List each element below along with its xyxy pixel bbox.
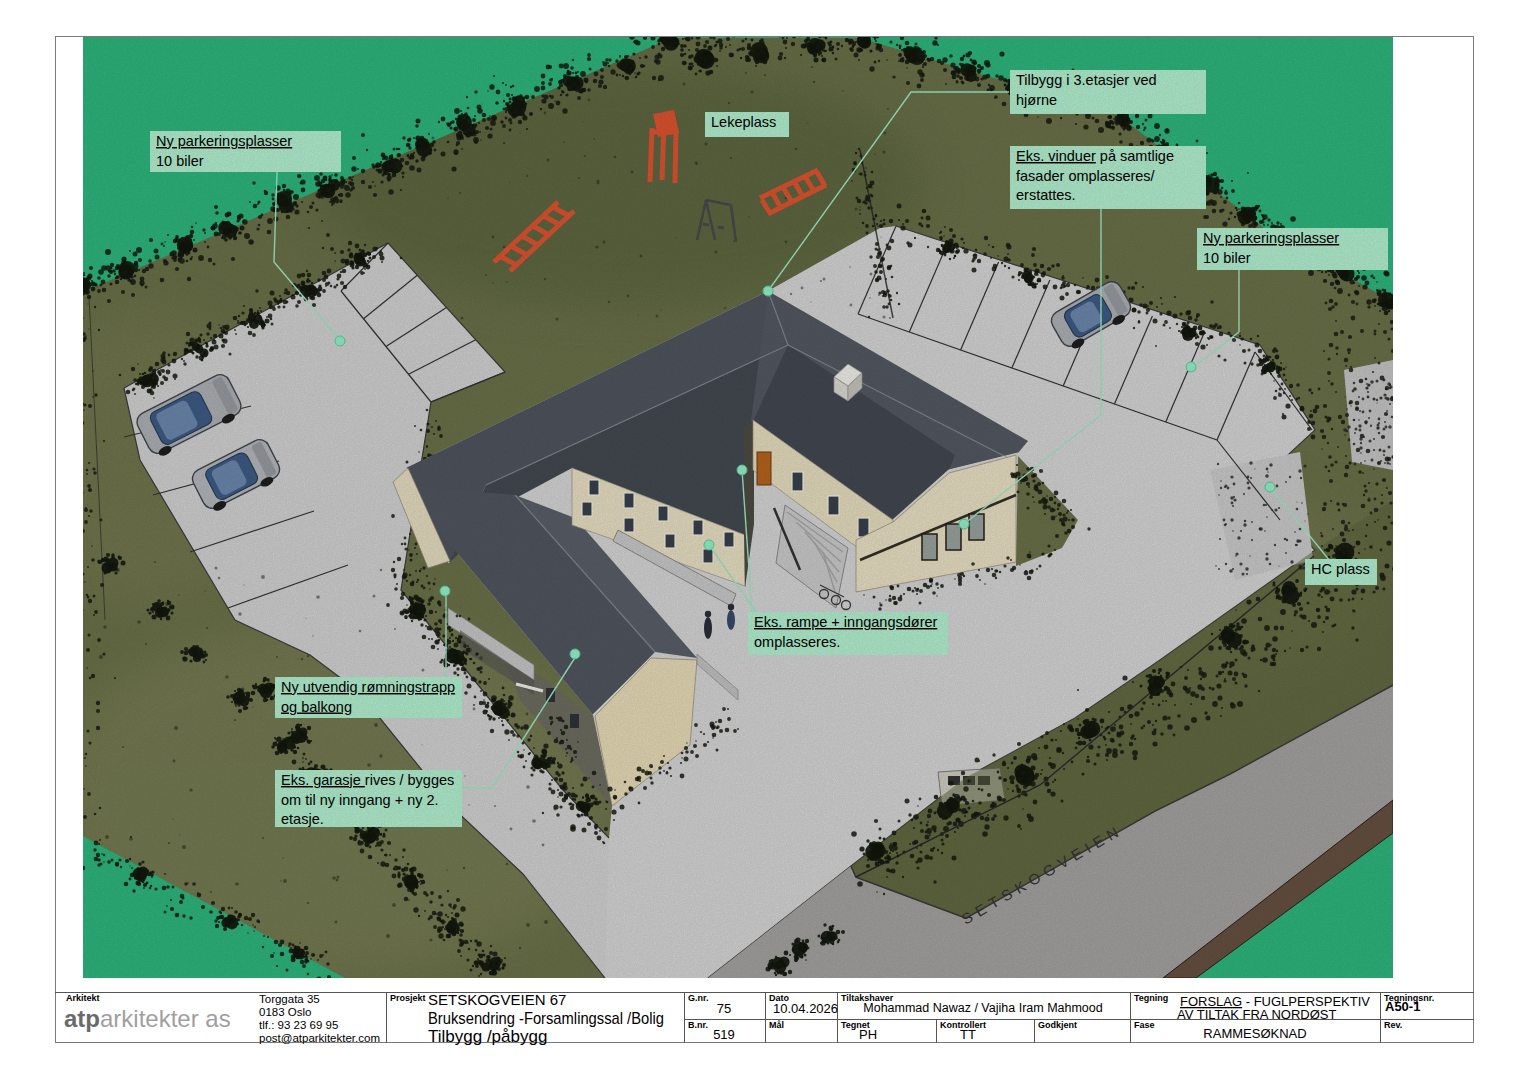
svg-text:Godkjent: Godkjent — [1038, 1020, 1077, 1030]
svg-text:519: 519 — [713, 1027, 735, 1042]
svg-text:RAMMESØKNAD: RAMMESØKNAD — [1203, 1026, 1306, 1041]
svg-text:0183 Oslo: 0183 Oslo — [259, 1006, 311, 1018]
svg-text:atparkitekter as: atparkitekter as — [64, 1005, 231, 1032]
svg-text:Mohammad Nawaz / Vajiha Iram M: Mohammad Nawaz / Vajiha Iram Mahmood — [863, 1001, 1102, 1015]
svg-text:10.04.2026: 10.04.2026 — [773, 1001, 838, 1016]
svg-text:AV TILTAK FRA NORDØST: AV TILTAK FRA NORDØST — [1177, 1007, 1336, 1022]
svg-text:Fase: Fase — [1134, 1020, 1155, 1030]
svg-text:A50-1: A50-1 — [1385, 999, 1420, 1014]
svg-text:Torggata 35: Torggata 35 — [259, 993, 320, 1005]
svg-text:Tegning: Tegning — [1134, 993, 1168, 1003]
svg-text:Bruksendring -Forsamlingssal /: Bruksendring -Forsamlingssal /Bolig — [428, 1009, 664, 1028]
svg-text:Rev.: Rev. — [1384, 1020, 1402, 1030]
svg-text:75: 75 — [717, 1001, 731, 1016]
svg-text:TT: TT — [960, 1027, 976, 1042]
svg-text:G.nr.: G.nr. — [688, 993, 709, 1003]
svg-text:tlf.: 93 23 69 95: tlf.: 93 23 69 95 — [259, 1019, 338, 1031]
svg-text:post@atparkitekter.com: post@atparkitekter.com — [259, 1032, 380, 1044]
svg-text:PH: PH — [859, 1027, 877, 1042]
svg-text:Arkitekt: Arkitekt — [66, 993, 100, 1003]
svg-text:Tilbygg /påbygg: Tilbygg /påbygg — [428, 1027, 547, 1046]
svg-text:Prosjekt: Prosjekt — [390, 993, 426, 1003]
svg-text:Mål: Mål — [769, 1020, 784, 1030]
svg-text:SETSKOGVEIEN 67: SETSKOGVEIEN 67 — [428, 991, 566, 1008]
svg-text:B.nr.: B.nr. — [688, 1020, 708, 1030]
